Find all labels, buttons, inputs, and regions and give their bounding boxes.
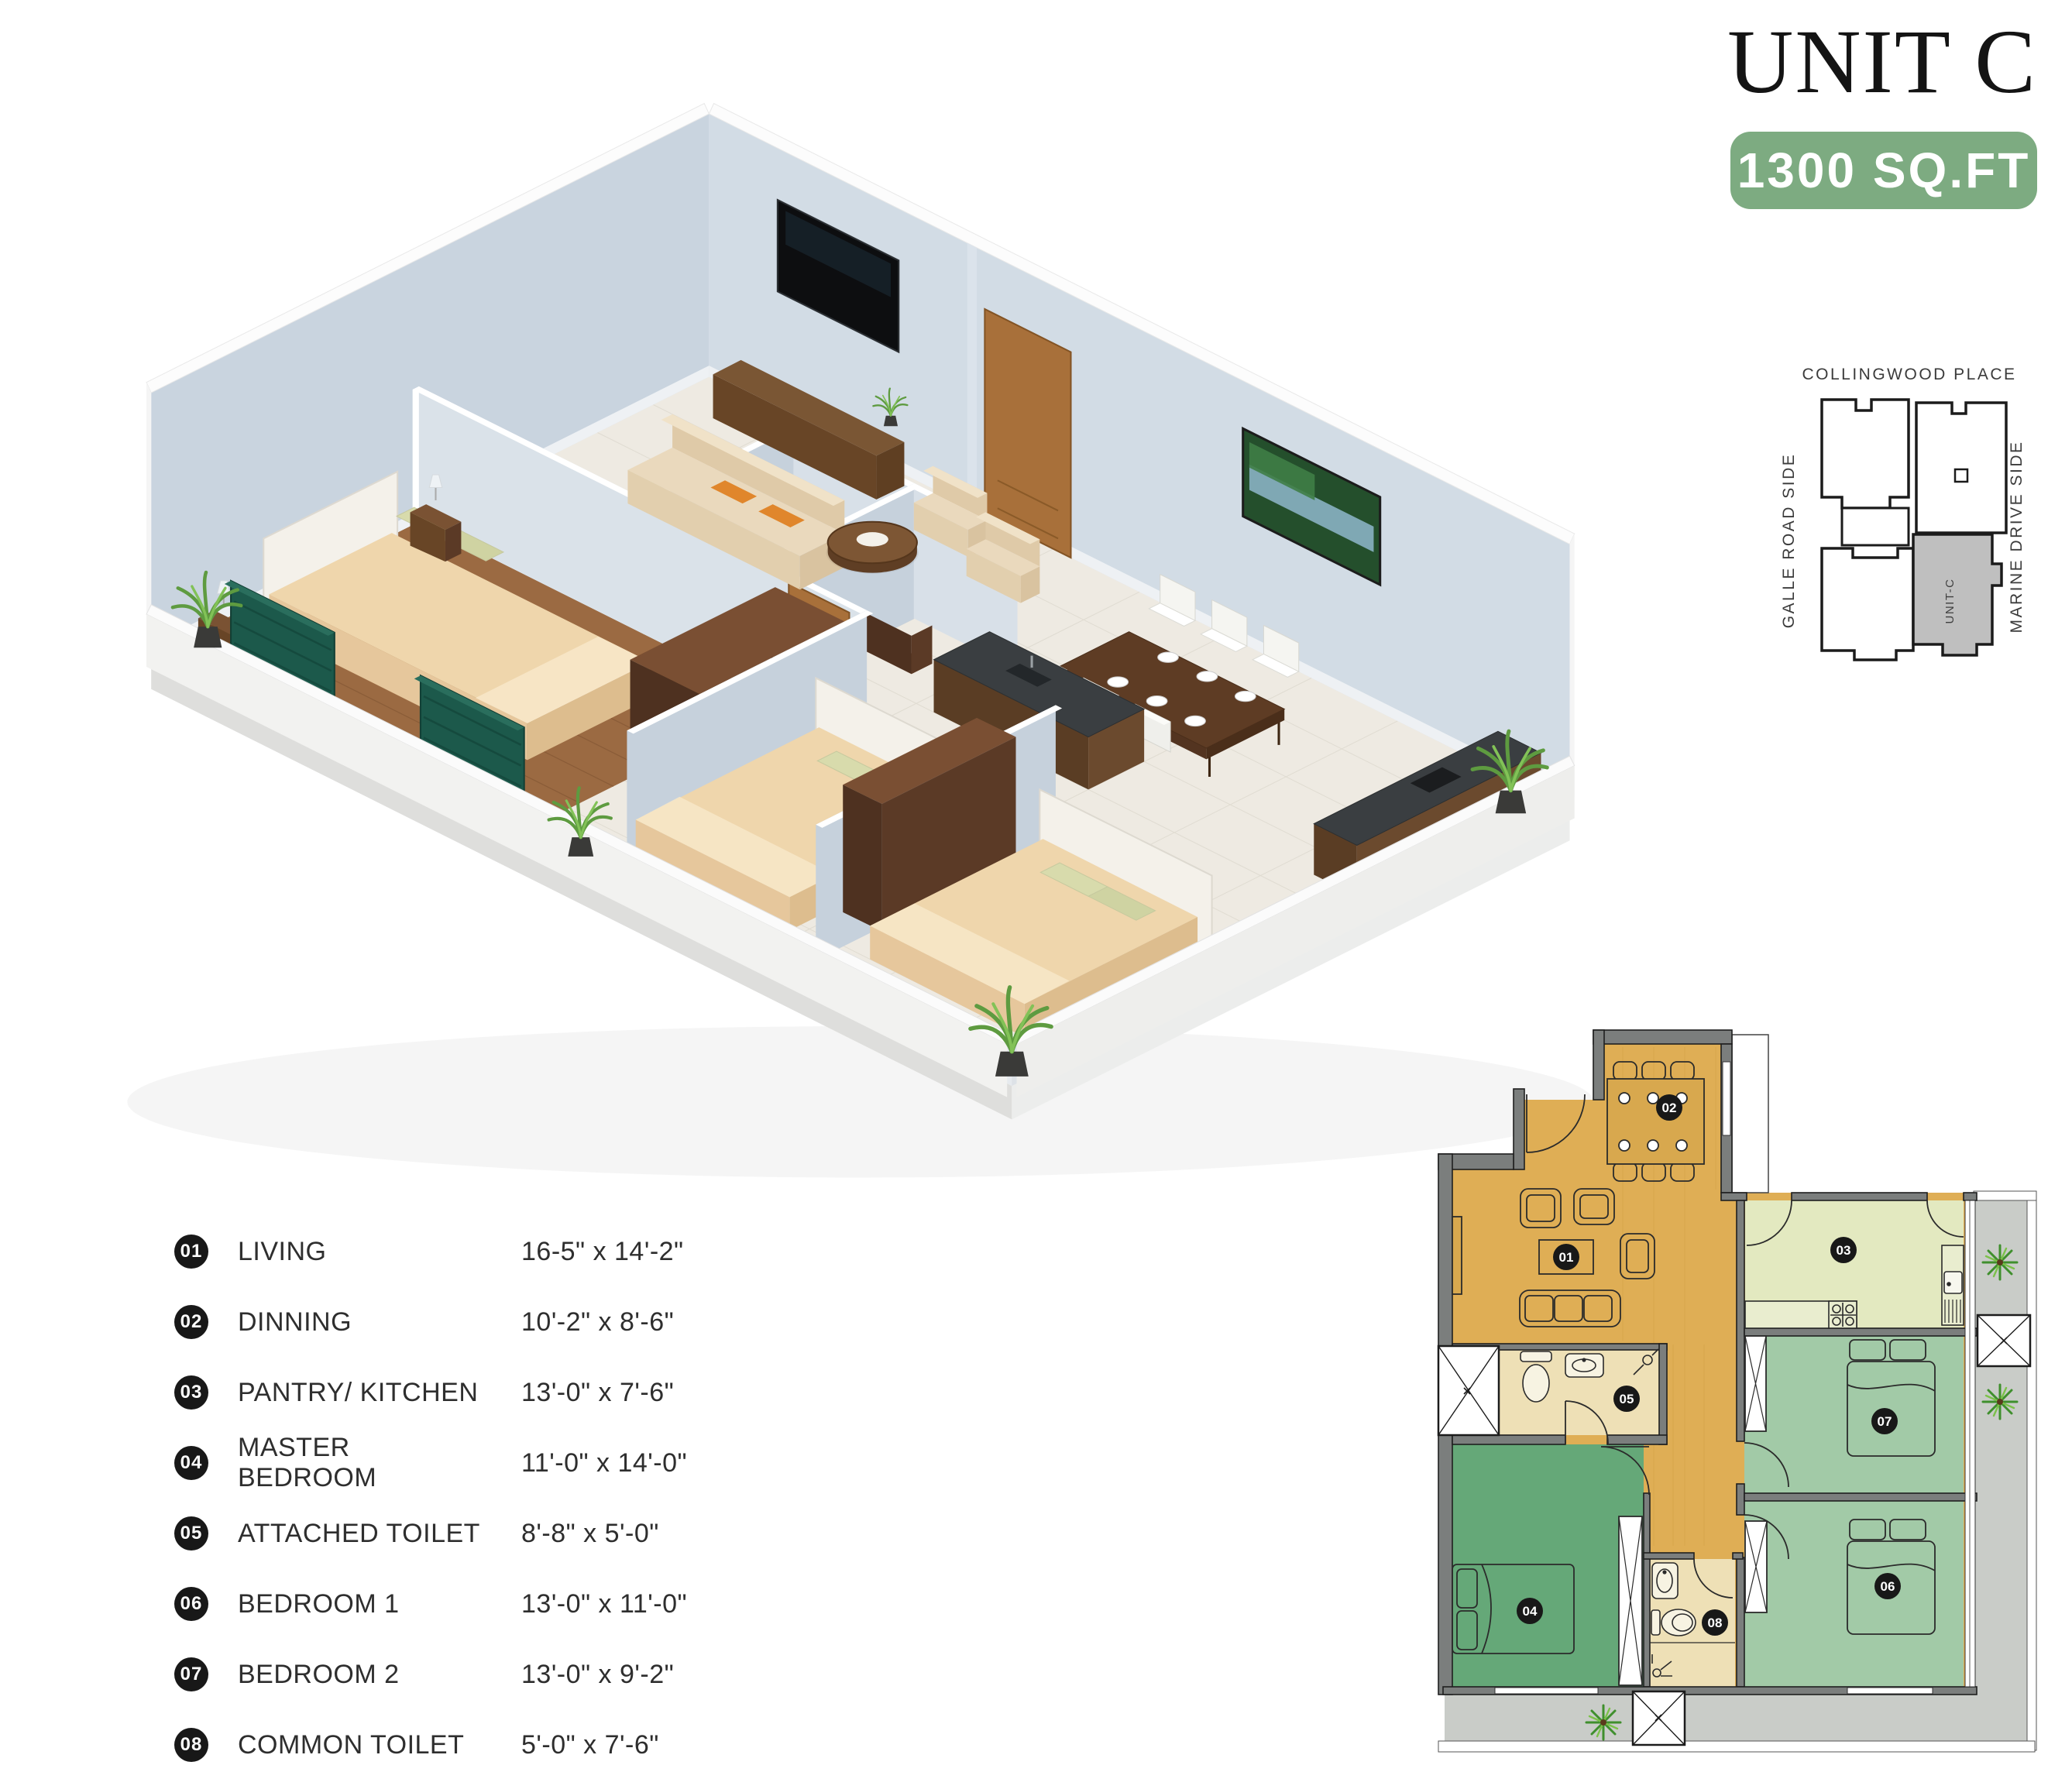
legend-number-badge: 05 [174, 1516, 208, 1550]
legend-number-badge: 07 [174, 1657, 208, 1691]
legend-item-bedroom-2: 07 BEDROOM 2 13'-0" x 9'-2" [174, 1657, 687, 1691]
room-legend: 01 LIVING 16-5" x 14'-2" 02 DINNING 10'-… [174, 1235, 687, 1762]
legend-room-dims: 13'-0" x 9'-2" [521, 1660, 674, 1690]
legend-item-kitchen: 03 PANTRY/ KITCHEN 13'-0" x 7'-6" [174, 1375, 687, 1410]
locator-unit-c-shape [1913, 534, 2002, 655]
legend-number-badge: 02 [174, 1305, 208, 1339]
locator-unit-label: UNIT-C [1943, 579, 1957, 624]
floor-plan-2d: 01 02 03 04 05 06 07 08 [1429, 1004, 2072, 1772]
legend-item-common-toilet: 08 COMMON TOILET 5'-0" x 7'-6" [174, 1728, 687, 1762]
room-number-badge: 03 [1837, 1243, 1851, 1258]
legend-item-dinning: 02 DINNING 10'-2" x 8'-6" [174, 1305, 687, 1339]
room-number-badge: 05 [1620, 1392, 1634, 1406]
legend-room-dims: 5'-0" x 7'-6" [521, 1730, 659, 1760]
plan-dining-balcony [1732, 1035, 1768, 1193]
room-number-badge: 02 [1662, 1101, 1677, 1115]
legend-room-dims: 13'-0" x 11'-0" [521, 1589, 687, 1619]
legend-item-bedroom-1: 06 BEDROOM 1 13'-0" x 11'-0" [174, 1587, 687, 1621]
legend-room-label: PANTRY/ KITCHEN [238, 1378, 493, 1408]
legend-room-dims: 16-5" x 14'-2" [521, 1237, 684, 1267]
room-number-badge: 07 [1878, 1414, 1892, 1429]
locator-diagram: COLLINGWOOD PLACE GALLE ROAD SIDE MARINE… [1774, 355, 2041, 699]
legend-number-badge: 06 [174, 1587, 208, 1621]
coffee-table [826, 522, 919, 574]
legend-room-label: MASTER BEDROOM [238, 1433, 493, 1493]
legend-room-label: DINNING [238, 1307, 493, 1338]
legend-item-master-bedroom: 04 MASTER BEDROOM 11'-0" x 14'-0" [174, 1446, 687, 1480]
page-title: UNIT C [1727, 14, 2037, 110]
locator-left-label: GALLE ROAD SIDE [1780, 453, 1798, 629]
legend-room-dims: 11'-0" x 14'-0" [521, 1448, 687, 1478]
area-badge: 1300 SQ.FT [1730, 132, 2037, 209]
legend-room-label: LIVING [238, 1237, 493, 1267]
legend-room-dims: 8'-8" x 5'-0" [521, 1519, 659, 1549]
legend-room-label: COMMON TOILET [238, 1730, 493, 1760]
room-number-badge: 01 [1559, 1250, 1574, 1265]
legend-item-living: 01 LIVING 16-5" x 14'-2" [174, 1235, 687, 1269]
legend-number-badge: 04 [174, 1446, 208, 1480]
room-number-badge: 06 [1881, 1579, 1895, 1594]
legend-room-label: ATTACHED TOILET [238, 1519, 493, 1549]
iso-3d-render [8, 31, 1665, 1193]
legend-room-dims: 10'-2" x 8'-6" [521, 1307, 674, 1338]
plan-room-master-bedroom [1452, 1444, 1644, 1687]
legend-number-badge: 01 [174, 1235, 208, 1269]
locator-right-label: MARINE DRIVE SIDE [2008, 440, 2026, 633]
brochure-page: UNIT C 1300 SQ.FT COLLINGWOOD PLACE GALL… [0, 0, 2072, 1772]
legend-number-badge: 03 [174, 1375, 208, 1410]
plan-dining-furniture [1607, 1062, 1704, 1181]
locator-building-outline [1822, 400, 2006, 660]
legend-room-label: BEDROOM 1 [238, 1589, 493, 1619]
legend-room-label: BEDROOM 2 [238, 1660, 493, 1690]
legend-item-attached-toilet: 05 ATTACHED TOILET 8'-8" x 5'-0" [174, 1516, 687, 1550]
room-number-badge: 04 [1523, 1604, 1538, 1619]
locator-top-label: COLLINGWOOD PLACE [1802, 366, 2016, 383]
legend-room-dims: 13'-0" x 7'-6" [521, 1378, 674, 1408]
legend-number-badge: 08 [174, 1728, 208, 1762]
room-number-badge: 08 [1708, 1616, 1723, 1630]
ground-shadow [127, 1026, 1593, 1177]
